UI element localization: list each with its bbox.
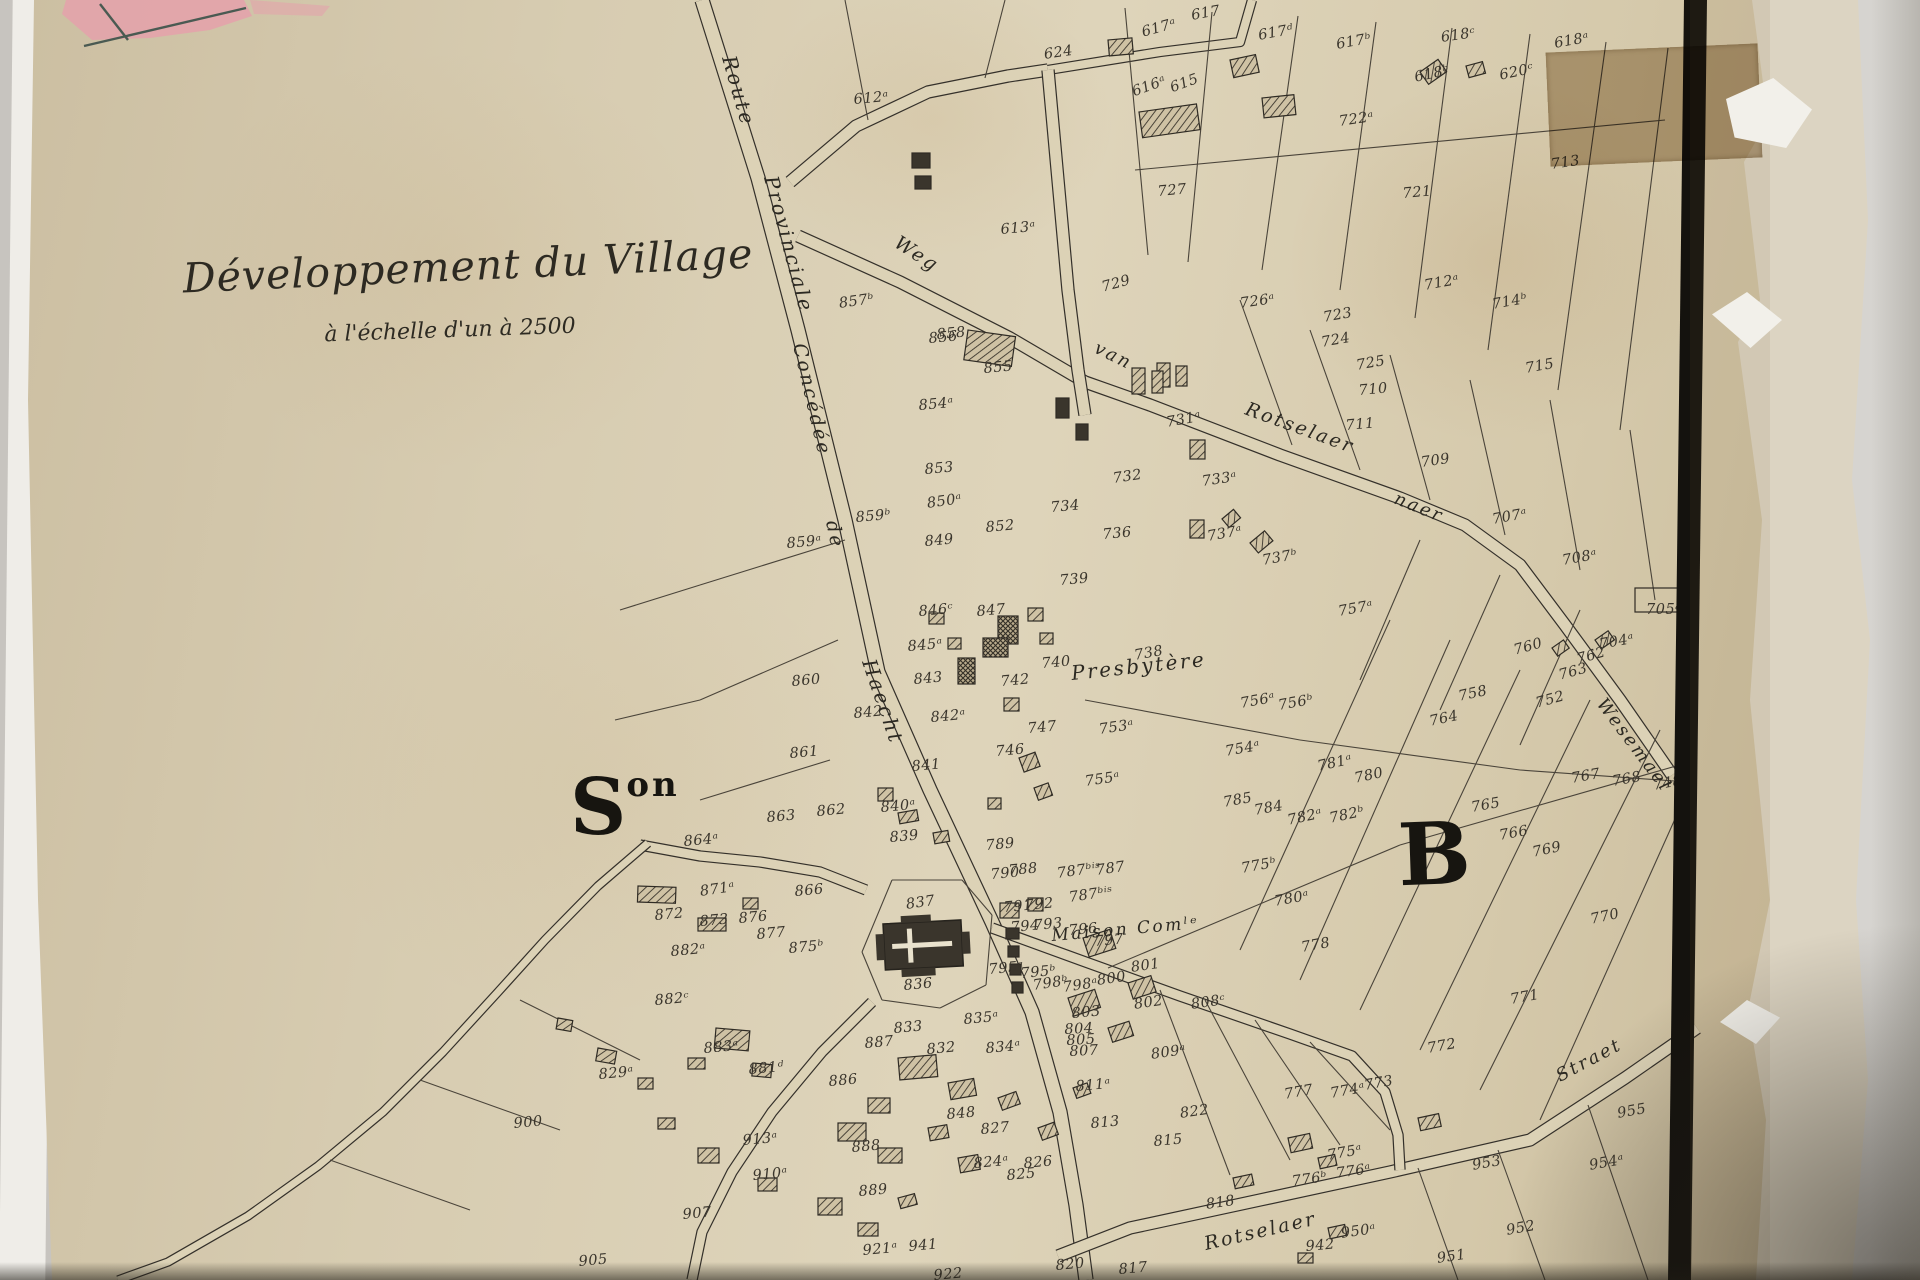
parcel-number: 882ᶜ (654, 990, 690, 1009)
parcel-number: 848 (946, 1104, 976, 1122)
parcel-number: 756ᵇ (1277, 692, 1315, 714)
building-footprint (1262, 95, 1296, 118)
parcel-number: 875ᵇ (788, 938, 825, 957)
road-name-label: Concédée (788, 341, 835, 458)
building-footprint (948, 638, 961, 649)
parcel-number: 790 (990, 864, 1020, 882)
building-footprint (1466, 62, 1486, 78)
building-footprint (1250, 531, 1273, 553)
parcel-boundary-line (520, 1000, 640, 1060)
parcel-boundary-line (985, 0, 1005, 78)
building-footprint (1190, 520, 1204, 538)
parcel-number: 755ᵃ (1084, 769, 1121, 790)
parcel-number: 746 (995, 741, 1025, 759)
parcel-number: 707ᵃ (1491, 506, 1528, 528)
parcel-number: 618ᵃ (1553, 30, 1590, 52)
pink-wash-area (250, 0, 330, 16)
building-footprint (878, 1148, 902, 1163)
parcel-boundary-line (330, 1160, 470, 1210)
parcel-number: 787ᵇⁱˢ (1056, 860, 1102, 882)
parcel-number: 815 (1153, 1131, 1183, 1149)
road-casing (118, 843, 648, 1280)
parcel-number: 754ᵃ (1224, 738, 1261, 760)
parcel-number: 769 (1531, 839, 1563, 861)
parcel-number: 864ᵃ (683, 831, 719, 850)
parcel-number: 859ᵃ (786, 533, 822, 552)
parcel-boundary-line (1340, 22, 1376, 290)
church-footprint (962, 931, 971, 953)
building-footprint (1132, 368, 1145, 394)
church-cross-icon (892, 943, 952, 946)
building-footprint (1233, 1174, 1254, 1189)
building-footprint (983, 638, 1008, 657)
photo-shadow-right (1870, 0, 1920, 1280)
parcel-number: 803 (1071, 1003, 1101, 1021)
parcel-number: 780 (1353, 765, 1385, 787)
parcel-number: 620ᶜ (1498, 61, 1535, 84)
building-footprint (637, 886, 676, 903)
parcel-number: 757ᵃ (1337, 598, 1374, 620)
parcel-number: 834ᵃ (985, 1038, 1021, 1057)
parcel-number: 807 (1069, 1042, 1099, 1060)
parcel-number: 871ᵃ (699, 879, 736, 900)
parcel-number: 792 (1024, 895, 1054, 913)
parcel-number: 768 (1611, 769, 1643, 790)
parcel-number: 861 (789, 743, 819, 761)
parcel-number: 752 (1534, 688, 1566, 711)
building-footprint (1008, 946, 1019, 957)
parcel-number: 853 (924, 459, 954, 477)
building-footprint (1034, 783, 1053, 800)
parcel-number: 780ᵃ (1273, 888, 1310, 910)
parcel-number: 910ᵃ (752, 1165, 788, 1184)
building-footprint (1038, 1122, 1058, 1140)
parcel-number: 715 (1524, 356, 1556, 377)
parcel-boundary-line (1390, 355, 1430, 500)
building-footprint (818, 1198, 842, 1215)
parcel-number: 863 (766, 807, 796, 825)
building-footprint (638, 1078, 653, 1089)
parcel-number: 866 (794, 881, 824, 899)
building-footprint (1108, 38, 1133, 56)
parcel-number: 782ᵃ (1286, 806, 1324, 829)
parcel-number: 705ᵃ (1646, 602, 1681, 618)
parcel-number: 777 (1283, 1082, 1315, 1103)
section-letter-b: B (1397, 811, 1473, 899)
parcel-number: 809ᵃ (1150, 1042, 1187, 1063)
building-footprint (1288, 1133, 1313, 1152)
parcel-number: 840ᵃ (880, 797, 916, 816)
church-cross-icon (909, 929, 911, 963)
building-footprint (948, 1078, 977, 1099)
building-footprint (596, 1048, 617, 1064)
parcel-number: 775ᵃ (1326, 1142, 1363, 1164)
parcel-number: 753ᵃ (1098, 717, 1135, 738)
parcel-number: 725 (1355, 353, 1387, 374)
parcel-number: 727 (1157, 181, 1188, 200)
parcel-number: 857ᵇ (838, 291, 875, 312)
road-surface (702, 0, 1086, 1280)
parcel-number: 766 (1498, 823, 1530, 844)
building-footprint (868, 1098, 890, 1113)
parcel-boundary-line (620, 585, 700, 610)
road-surface (640, 845, 866, 890)
parcel-number: 739 (1059, 570, 1089, 588)
parcel-number: 888 (851, 1137, 881, 1155)
photo-of-map: 612ᵃ624613ᵃ617ᵃ617617ᵈ617ᵇ618ᶜ618ᵃ618ᵇ62… (0, 0, 1920, 1280)
parcel-number: 732 (1112, 467, 1143, 487)
parcel-number: 624 (1043, 43, 1074, 63)
parcel-number: 877 (756, 924, 787, 943)
parcel-number: 737ᵇ (1261, 547, 1299, 569)
parcel-boundary-line (1240, 620, 1390, 950)
parcel-number: 617 (1190, 3, 1222, 24)
parcel-number: 721 (1402, 183, 1432, 201)
photo-shadow-corner (1500, 920, 1920, 1280)
building-footprint (928, 1125, 949, 1141)
parcel-number: 833 (893, 1018, 923, 1036)
parcel-number: 763 (1557, 660, 1589, 683)
parcel-boundary-line (700, 760, 830, 800)
parcel-number: 842ᵃ (930, 707, 966, 726)
road-name-label: van (1091, 338, 1136, 374)
place-name-label: Maison Comˡᵉ (1050, 913, 1201, 946)
road-surface (118, 843, 648, 1280)
parcel-number: 801 (1130, 956, 1161, 976)
parcel-number: 882ᵃ (670, 941, 706, 960)
parcel-number: 872 (654, 905, 684, 923)
parcel-number: 873 (699, 911, 729, 929)
road-name-label: Haecht (857, 655, 909, 747)
parcel-number: 616ᵃ (1130, 73, 1168, 100)
parcel-number: 729 (1100, 272, 1132, 295)
parcel-number: 921ᵃ (862, 1240, 898, 1259)
parcel-number: 881ᵈ (748, 1059, 785, 1078)
road-name-label: Weg (890, 232, 943, 277)
building-footprint (698, 1148, 719, 1163)
parcel-number: 849 (924, 531, 954, 549)
building-footprint (1056, 398, 1069, 418)
parcel-number: 822 (1179, 1102, 1210, 1122)
building-footprint (915, 176, 931, 189)
parcel-number: 886 (828, 1071, 858, 1089)
parcel-number: 855 (983, 358, 1013, 376)
parcel-number: 860 (791, 671, 821, 689)
parcel-number: 839 (889, 827, 919, 845)
building-footprint (933, 830, 950, 843)
building-footprint (898, 1055, 938, 1080)
hamlet-label-son-superscript: on (626, 765, 679, 805)
parcel-number: 795ᵃ (988, 959, 1024, 978)
building-footprint (912, 153, 930, 168)
parcel-number: 852 (985, 517, 1015, 535)
parcel-number: 843 (913, 669, 943, 687)
parcel-number: 836 (903, 975, 933, 993)
building-footprint (1176, 366, 1187, 386)
parcel-number: 787ᵇⁱˢ (1068, 884, 1114, 906)
parcel-boundary-line (882, 1000, 940, 1008)
parcel-boundary-line (1550, 400, 1580, 570)
building-footprint (1040, 633, 1053, 644)
parcel-boundary-line (700, 640, 838, 700)
parcel-number: 824ᵃ (973, 1153, 1009, 1172)
parcel-number: 942 (1305, 1236, 1335, 1254)
parcel-number: 764 (1428, 708, 1460, 730)
parcel-number: 813 (1090, 1113, 1120, 1131)
parcel-number: 613ᵃ (1000, 219, 1036, 238)
building-footprint (998, 1092, 1020, 1111)
parcel-number: 847 (976, 601, 1007, 620)
parcel-number: 772 (1426, 1036, 1458, 1057)
parcel-number: 737ᵃ (1206, 523, 1243, 545)
parcel-number: 742 (1000, 671, 1030, 689)
parcel-number: 913ᵃ (742, 1130, 778, 1149)
building-footprint (1076, 424, 1088, 440)
parcel-boundary-line (1262, 16, 1298, 270)
parcel-number: 724 (1320, 330, 1352, 351)
parcel-number: 726ᵃ (1239, 291, 1276, 312)
parcel-number: 876 (738, 908, 768, 926)
parcel-number: 617ᵃ (1140, 16, 1178, 41)
parcel-number: 907 (682, 1204, 713, 1223)
parcel-number: 941 (908, 1236, 938, 1254)
parcel-number: 829ᵃ (598, 1064, 634, 1083)
hamlet-label-son-initial: S (570, 762, 626, 853)
parcel-number: 827 (980, 1119, 1011, 1138)
parcel-number: 617ᵈ (1257, 22, 1295, 44)
building-footprint (658, 1118, 675, 1129)
building-footprint (556, 1018, 573, 1031)
parcel-number: 778 (1300, 935, 1332, 956)
parcel-boundary-line (940, 985, 986, 1008)
parcel-number: 859ᵇ (855, 507, 892, 526)
parcel-number: 710 (1358, 380, 1388, 398)
parcel-number: 825 (1006, 1165, 1036, 1183)
parcel-boundary-line (1630, 430, 1655, 600)
parcel-number: 785 (1222, 790, 1254, 811)
parcel-number: 789 (985, 835, 1015, 853)
building-footprint (1139, 104, 1200, 138)
building-footprint (958, 658, 975, 684)
parcel-number: 802 (1133, 993, 1164, 1013)
parcel-number: 846ᶜ (918, 601, 954, 620)
building-footprint (988, 798, 1001, 809)
parcel-number: 711 (1345, 415, 1375, 433)
parcel-number: 841 (911, 756, 941, 774)
parcel-number: 712ᵃ (1423, 272, 1460, 294)
building-footprint (898, 1194, 917, 1209)
parcel-number: 708ᵃ (1561, 547, 1598, 569)
parcel-boundary-line (615, 700, 700, 720)
parcel-number: 800 (1096, 969, 1127, 989)
parcel-number: 756ᵃ (1239, 690, 1276, 712)
parcel-number: 758 (1457, 683, 1489, 705)
parcel-number: 722ᵃ (1338, 109, 1375, 130)
road-name-label: naer (1391, 488, 1447, 527)
parcel-number: 709 (1420, 451, 1451, 471)
parcel-number: 734 (1050, 497, 1080, 515)
building-footprint (1552, 640, 1569, 656)
parcel-number: 612ᵃ (853, 89, 889, 108)
pink-wash-area (62, 0, 252, 40)
parcel-number: 889 (858, 1181, 888, 1199)
parcel-number: 615 (1168, 71, 1201, 96)
hamlet-label-son: Son (570, 768, 680, 847)
building-footprint (1190, 440, 1205, 459)
building-footprint (743, 898, 758, 909)
parcel-number: 837 (905, 893, 936, 913)
parcel-number: 775ᵇ (1240, 855, 1278, 877)
building-footprint (1028, 608, 1043, 621)
parcel-number: 714ᵇ (1491, 291, 1529, 313)
adjacent-sheet-pink-fragment (62, 0, 330, 46)
building-footprint (688, 1058, 705, 1069)
building-footprint (1152, 371, 1163, 393)
parcel-number: 900 (513, 1113, 543, 1131)
parcel-number: 617ᵇ (1335, 31, 1373, 53)
church-footprint (876, 934, 885, 960)
parcel-number: 767 (1570, 766, 1602, 787)
building-footprint (858, 1223, 878, 1236)
church-group (875, 913, 972, 979)
building-footprint (1004, 698, 1019, 711)
building-footprint (1230, 55, 1259, 78)
parcel-number: 854ᵃ (918, 395, 954, 414)
church-building (875, 913, 972, 979)
parcel-number: 883ᵃ (703, 1038, 739, 1057)
parcel-number: 740 (1041, 653, 1071, 671)
building-footprint (1418, 1114, 1441, 1131)
parcel-number: 862 (816, 801, 846, 819)
parcel-number: 845ᵃ (907, 636, 943, 655)
parcel-number: 782ᵇ (1328, 804, 1366, 827)
parcel-number: 850ᵃ (926, 491, 963, 512)
parcel-number: 747 (1027, 718, 1058, 737)
parcel-number: 760 (1512, 635, 1544, 658)
parcel-number: 950ᵃ (1340, 1221, 1377, 1242)
parcel-number: 858 (936, 324, 966, 342)
parcel-number: 835ᵃ (963, 1009, 999, 1028)
parcel-number: 618ᶜ (1440, 25, 1477, 46)
parcel-number: 784 (1253, 798, 1285, 819)
building-footprint (1012, 982, 1023, 993)
parcel-number: 781ᵃ (1316, 752, 1354, 775)
parcel-number: 723 (1322, 305, 1354, 326)
parcel-number: 811ᵃ (1075, 1076, 1111, 1095)
parcel-boundary-line (700, 540, 845, 585)
parcel-number: 887 (864, 1033, 895, 1052)
parcel-number: 736 (1102, 524, 1132, 542)
parcel-number: 765 (1470, 795, 1502, 816)
parcel-number: 733ᵃ (1201, 469, 1238, 490)
parcel-number: 832 (926, 1039, 956, 1057)
building-footprint (1108, 1021, 1134, 1042)
